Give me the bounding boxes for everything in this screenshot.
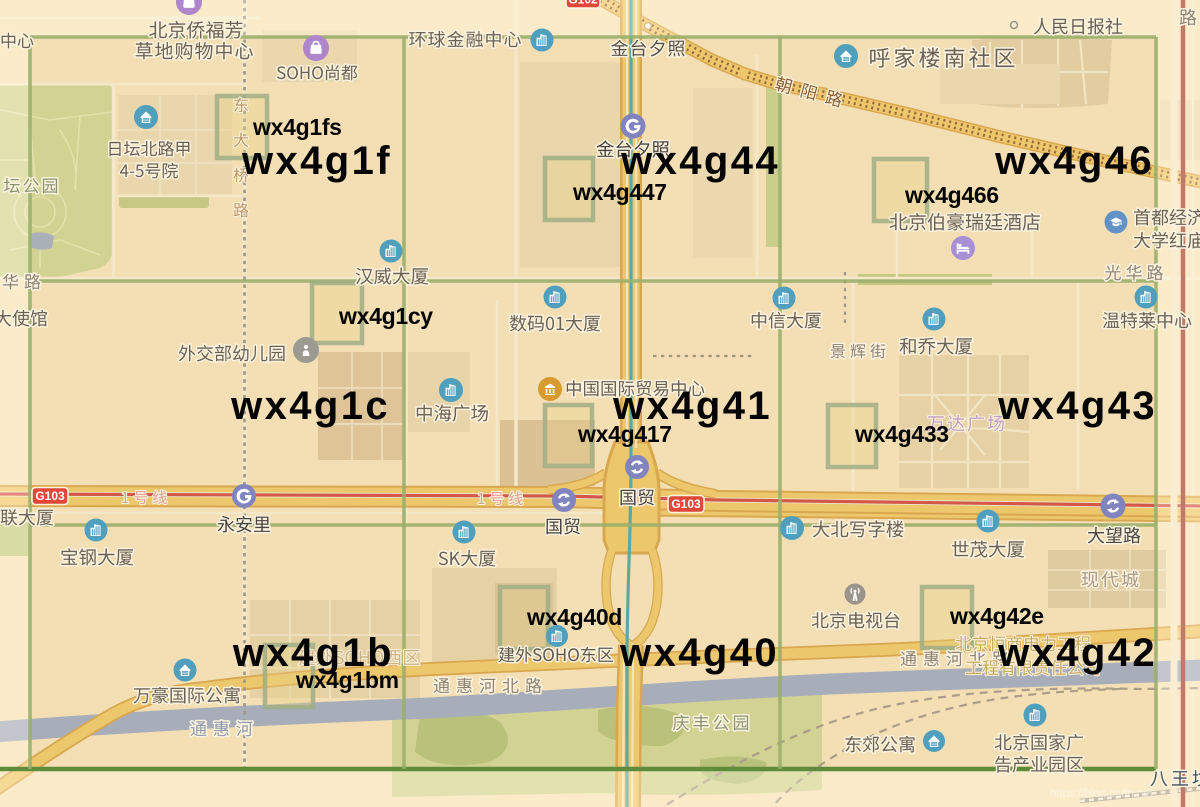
svg-text:wx4g46: wx4g46 — [994, 139, 1154, 183]
svg-text:wx4g43: wx4g43 — [997, 384, 1157, 428]
svg-text:G103: G103 — [35, 489, 65, 503]
svg-text:G103: G103 — [671, 497, 701, 511]
svg-text:wx4g433: wx4g433 — [854, 421, 949, 447]
svg-text:wx4g40d: wx4g40d — [526, 604, 622, 630]
svg-text:wx4g1cy: wx4g1cy — [338, 303, 433, 329]
svg-text:wx4g447: wx4g447 — [572, 179, 667, 205]
svg-text:httpsː//blog.csdn.net: httpsː//blog.csdn.net — [1050, 788, 1154, 800]
svg-text:wx4g1bm: wx4g1bm — [295, 667, 399, 693]
svg-text:wx4g42e: wx4g42e — [949, 603, 1044, 629]
svg-text:wx4g466: wx4g466 — [904, 182, 999, 208]
svg-text:wx4g1c: wx4g1c — [230, 384, 390, 428]
svg-text:wx4g1fs: wx4g1fs — [252, 114, 342, 140]
svg-text:wx4g1f: wx4g1f — [241, 139, 392, 183]
svg-text:wx4g42: wx4g42 — [997, 631, 1157, 675]
svg-text:wx4g417: wx4g417 — [577, 421, 672, 447]
svg-text:wx4g40: wx4g40 — [619, 631, 779, 675]
svg-text:G102: G102 — [568, 0, 598, 7]
svg-text:wx4g44: wx4g44 — [620, 139, 780, 183]
